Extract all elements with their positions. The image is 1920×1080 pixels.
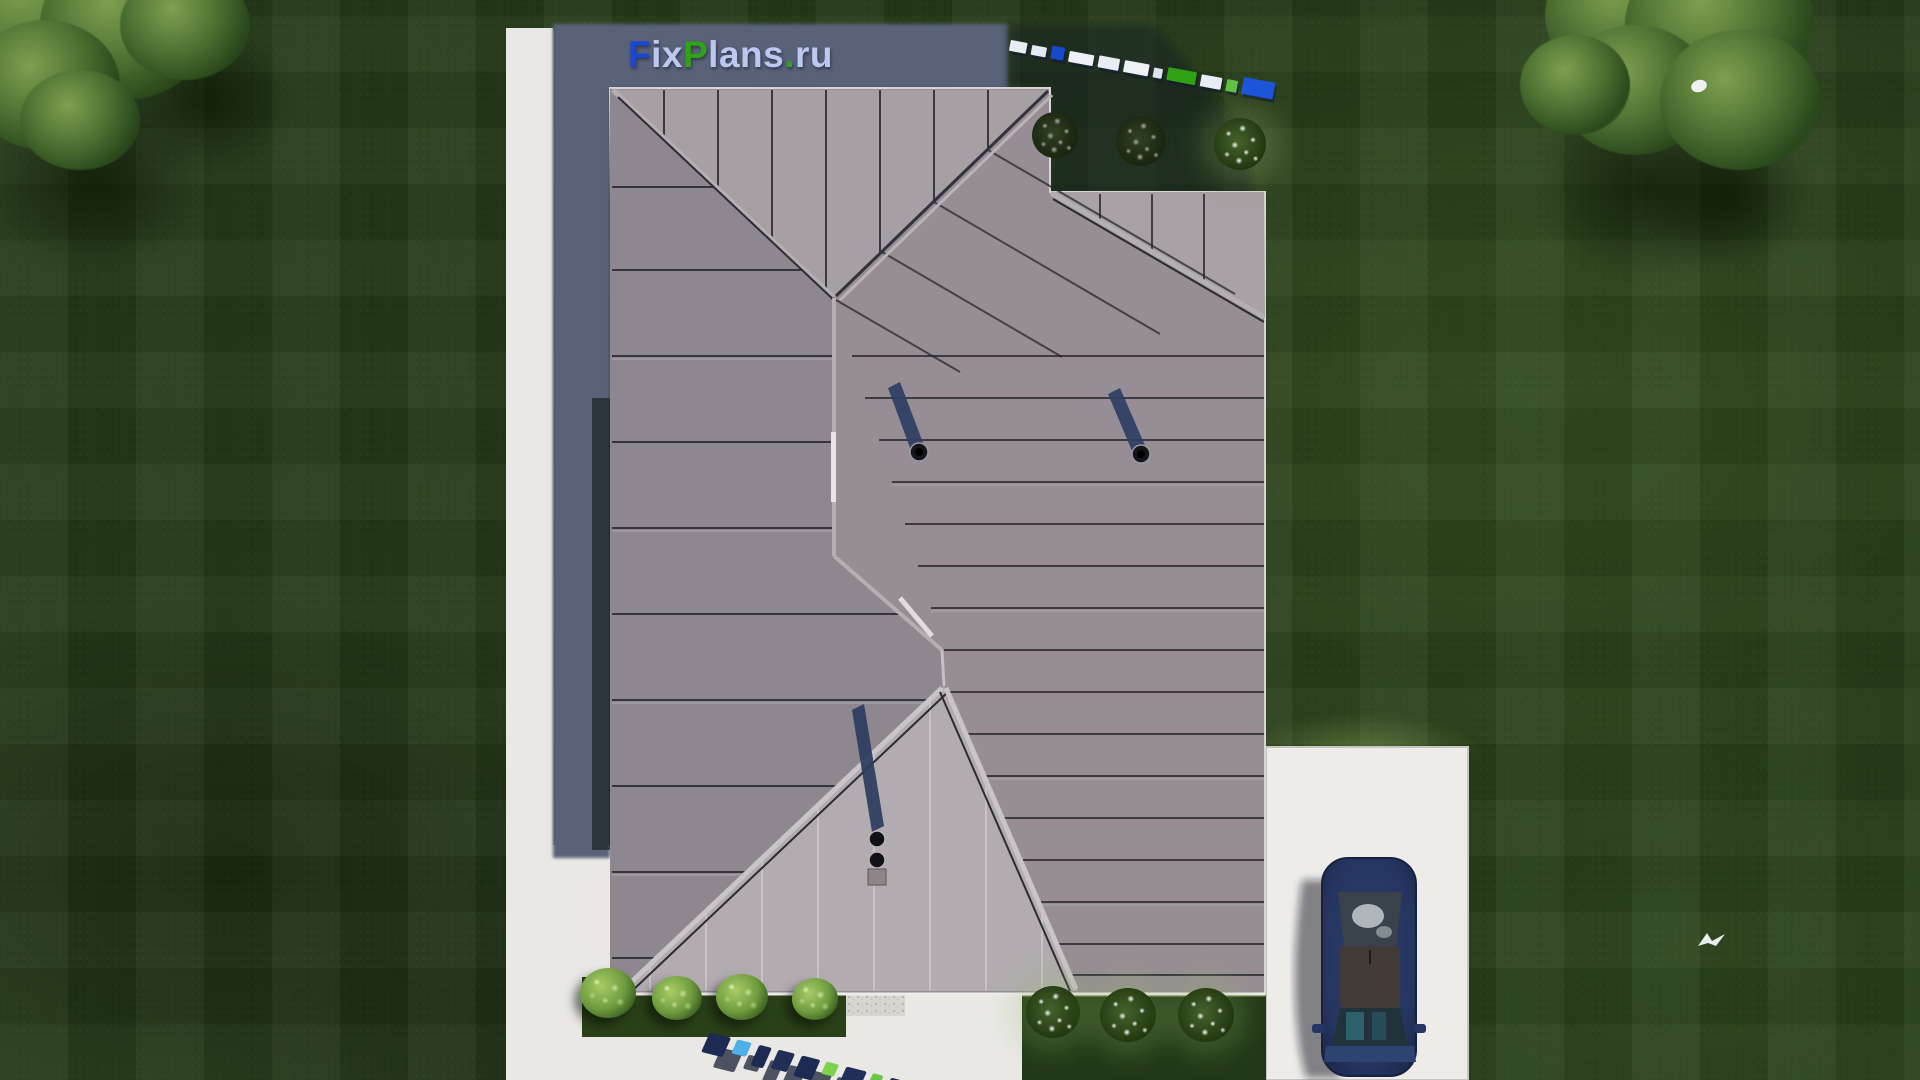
fixplans-logo: FixPlans.ru (628, 34, 833, 76)
watermark-block (1225, 79, 1238, 93)
logo-letter: x (662, 34, 683, 76)
watermark-block (793, 1055, 821, 1080)
site-plan-render: FixPlans.ru FixPlans.ru (0, 0, 1920, 1080)
wall-planting-strip (592, 398, 612, 850)
watermark-block (1152, 67, 1163, 78)
logo-letter: F (628, 34, 651, 76)
window-reflection (1352, 904, 1384, 928)
car-mirror-right (1413, 1024, 1426, 1033)
car (1295, 858, 1426, 1078)
shrub (580, 968, 636, 1018)
car-mirror-left (1312, 1024, 1325, 1033)
watermark-block (750, 1045, 772, 1069)
windshield-reflection (1346, 1012, 1364, 1040)
ridge-glint (831, 432, 836, 502)
watermark-block (821, 1062, 839, 1077)
bird-flying (1698, 933, 1725, 946)
car-hood (1324, 1046, 1416, 1062)
shrub (652, 976, 702, 1020)
shrub (716, 974, 768, 1020)
shrub (792, 978, 838, 1020)
logo-letter: u (810, 34, 833, 76)
flower-bush (1116, 116, 1166, 166)
logo-letter: a (719, 34, 740, 76)
scene-geometry (0, 0, 1920, 1080)
bird-on-tree (1690, 78, 1709, 94)
logo-letter: P (683, 34, 708, 76)
flower-bush (1032, 112, 1078, 158)
window-reflection (1376, 926, 1392, 938)
logo-letter: l (708, 34, 719, 76)
flower-bush (1026, 986, 1080, 1038)
logo-letter: . (784, 34, 795, 76)
logo-letter: s (763, 34, 784, 76)
house-roof (610, 88, 1265, 994)
logo-letter: i (651, 34, 662, 76)
logo-letter: n (740, 34, 763, 76)
logo-letter: r (795, 34, 810, 76)
windshield-reflection (1372, 1012, 1386, 1040)
watermark-block (1050, 46, 1065, 61)
watermark-block (770, 1050, 795, 1073)
watermark-block (731, 1039, 752, 1057)
flower-bush (1214, 118, 1266, 170)
flower-bush (1178, 988, 1234, 1042)
flower-bush (1100, 988, 1156, 1042)
car-windshield (1332, 1008, 1408, 1046)
